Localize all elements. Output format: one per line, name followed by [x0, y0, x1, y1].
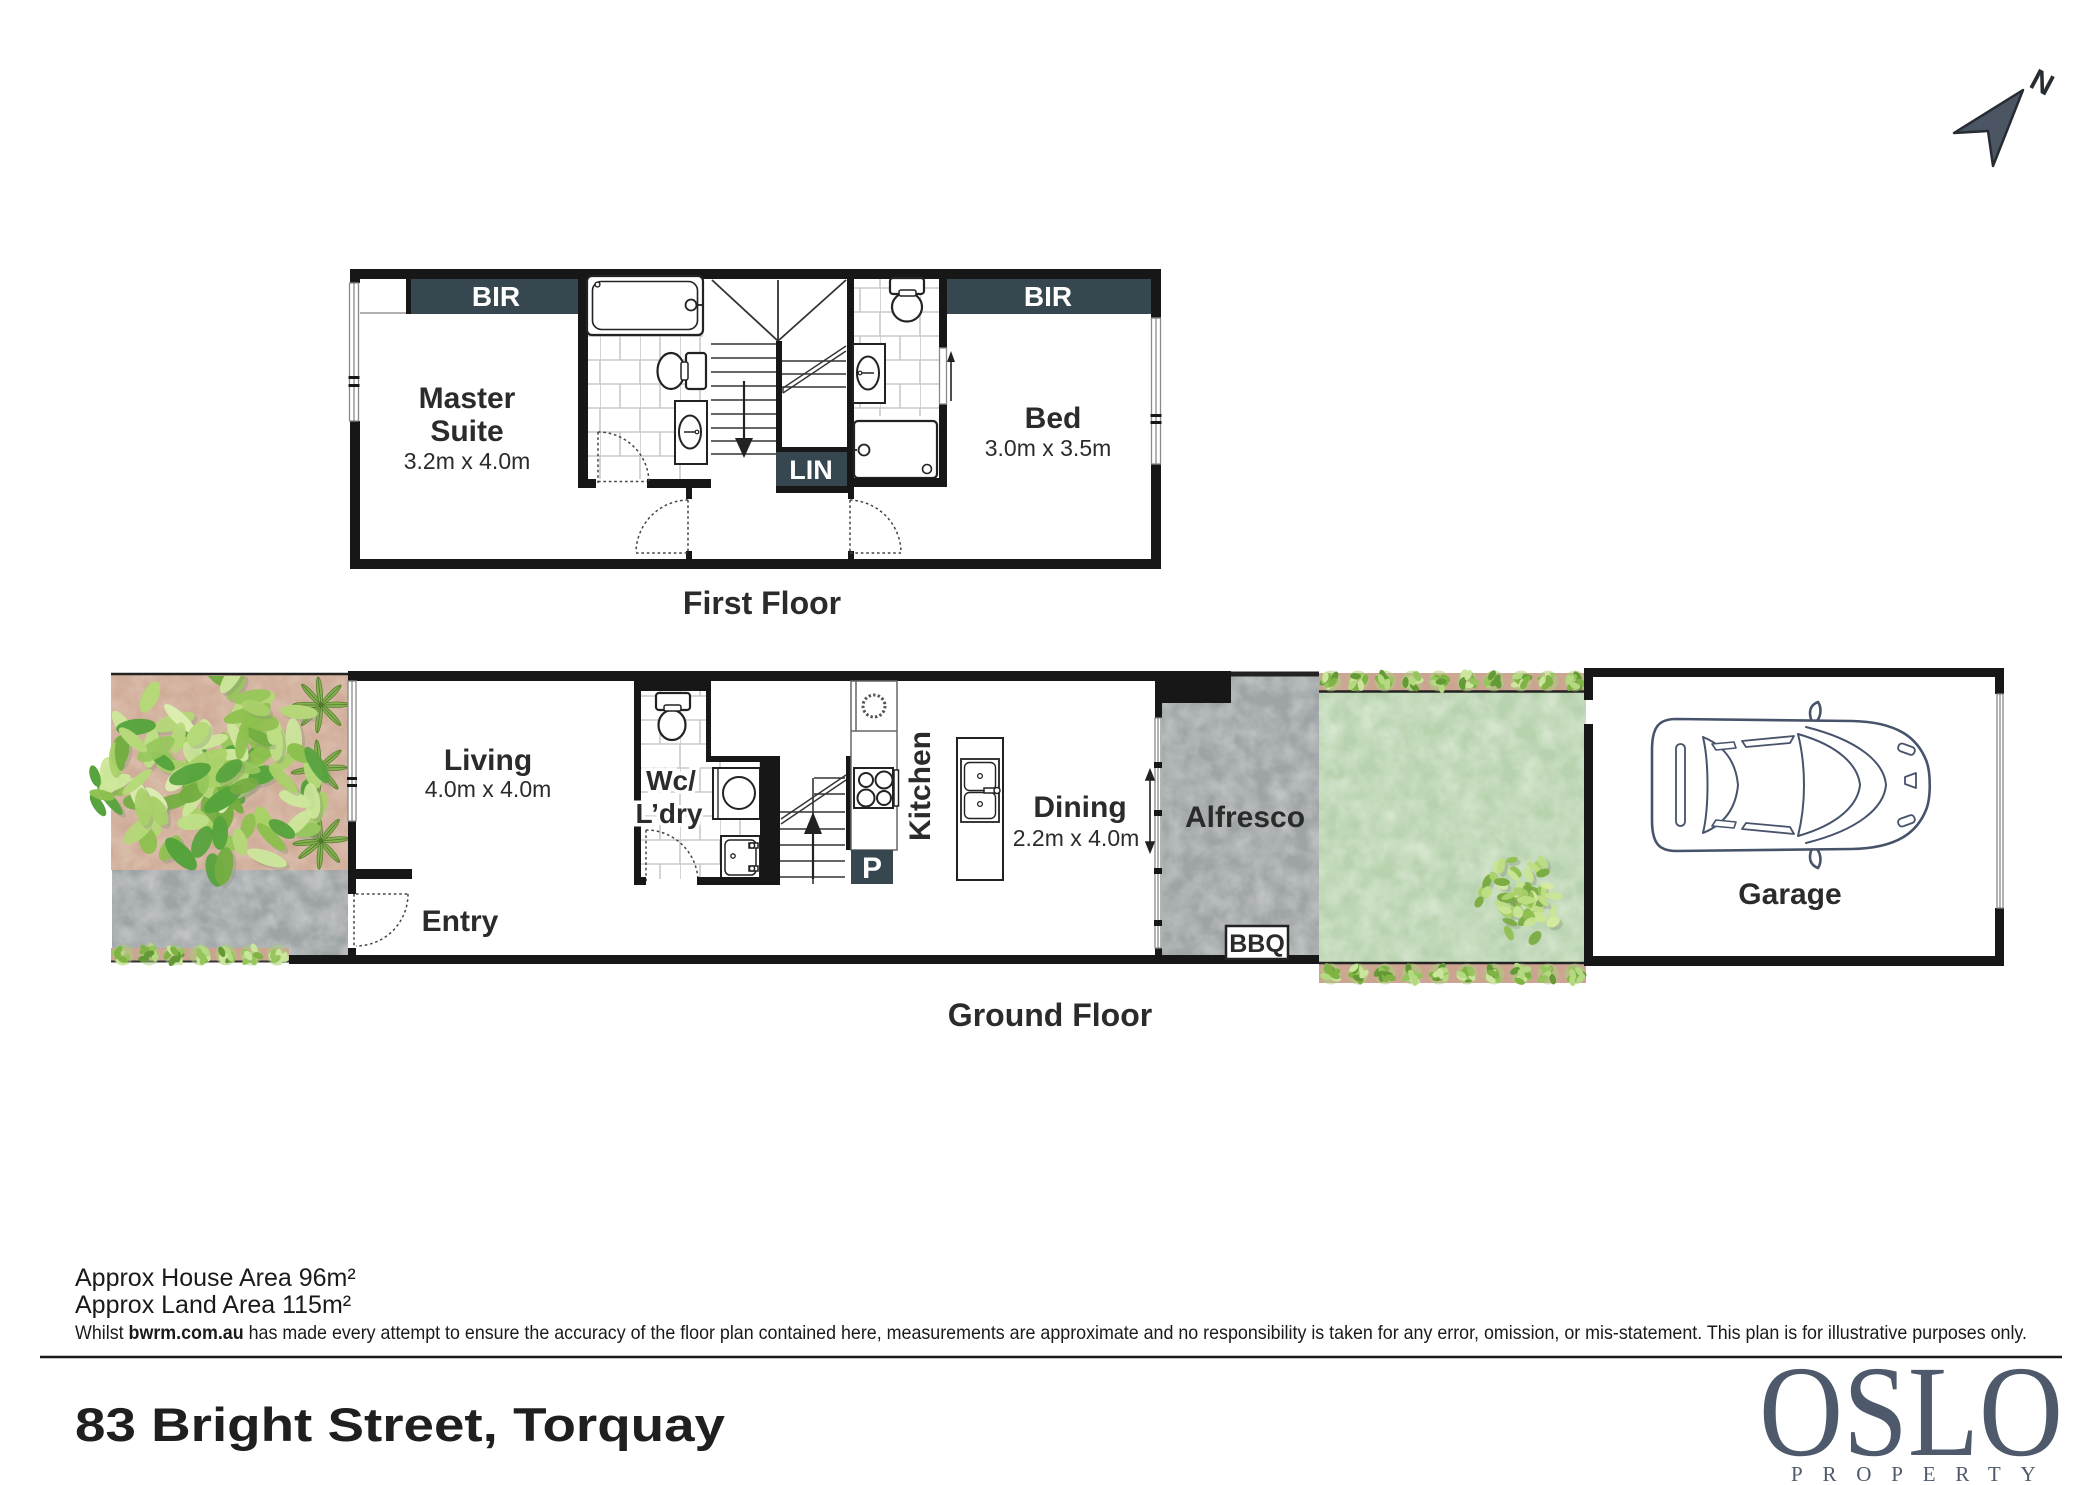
svg-text:Whilst bwrm.com.au has made ev: Whilst bwrm.com.au has made every attemp…	[75, 1322, 2027, 1344]
svg-text:83 Bright Street, Torquay: 83 Bright Street, Torquay	[75, 1398, 725, 1451]
svg-text:Approx House Area 96m²: Approx House Area 96m²	[75, 1264, 356, 1292]
svg-text:Garage: Garage	[1738, 878, 1841, 911]
svg-text:Approx Land Area 115m²: Approx Land Area 115m²	[75, 1291, 351, 1319]
svg-text:Living: Living	[444, 744, 532, 777]
svg-text:Wc/: Wc/	[646, 765, 696, 796]
svg-text:Suite: Suite	[430, 415, 503, 448]
svg-text:L’dry: L’dry	[636, 798, 703, 829]
svg-text:3.0m x 3.5m: 3.0m x 3.5m	[985, 435, 1112, 461]
svg-text:First Floor: First Floor	[683, 585, 841, 621]
svg-text:2.2m x 4.0m: 2.2m x 4.0m	[1013, 825, 1140, 851]
svg-text:Master: Master	[419, 382, 516, 415]
svg-text:Dining: Dining	[1033, 791, 1126, 824]
svg-text:BIR: BIR	[472, 281, 520, 312]
svg-text:Kitchen: Kitchen	[904, 731, 937, 841]
svg-text:Alfresco: Alfresco	[1185, 801, 1305, 834]
svg-text:BBQ: BBQ	[1229, 930, 1285, 958]
svg-text:LIN: LIN	[789, 455, 833, 485]
svg-text:Bed: Bed	[1025, 402, 1082, 435]
svg-text:3.2m x 4.0m: 3.2m x 4.0m	[404, 448, 531, 474]
svg-text:4.0m x 4.0m: 4.0m x 4.0m	[425, 776, 552, 802]
svg-text:Ground Floor: Ground Floor	[948, 997, 1152, 1033]
svg-text:Entry: Entry	[422, 905, 499, 938]
svg-text:PROPERTY: PROPERTY	[1791, 1462, 2056, 1485]
svg-text:BIR: BIR	[1024, 281, 1072, 312]
svg-text:P: P	[862, 852, 882, 885]
